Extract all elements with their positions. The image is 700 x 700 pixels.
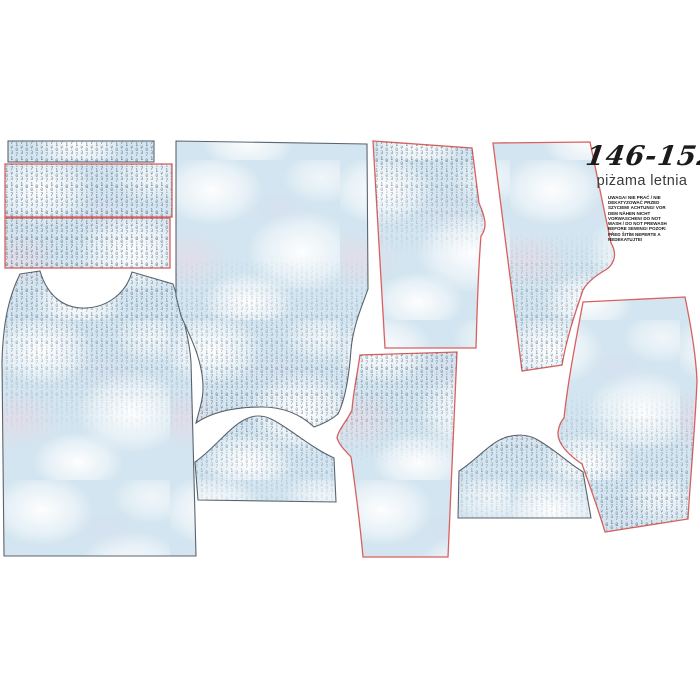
piece-shorts-front-right (337, 352, 457, 557)
pattern-pieces-canvas: 1 0 7 ¥ 3 0 1 1 0 7 (0, 0, 700, 700)
piece-sleeve-left (195, 416, 336, 502)
care-warning-text: UWAGA! NIE PRAĆ / NIE DEKATYZOWAĆ PRZED … (608, 195, 671, 242)
size-label: 146-152 (584, 143, 700, 170)
piece-shorts-front-left (373, 141, 485, 348)
piece-cuff-strip-2 (5, 218, 170, 268)
piece-neckband-strip (8, 141, 154, 162)
product-name: piżama letnia (586, 173, 698, 189)
piece-cuff-strip-1 (5, 164, 172, 217)
fabric-panel: 1 0 7 ¥ 3 0 1 1 0 7 (0, 0, 700, 700)
piece-top-front (2, 271, 196, 556)
panel-title-block: 146-152 piżama letnia (586, 143, 698, 189)
piece-top-back (176, 141, 368, 427)
